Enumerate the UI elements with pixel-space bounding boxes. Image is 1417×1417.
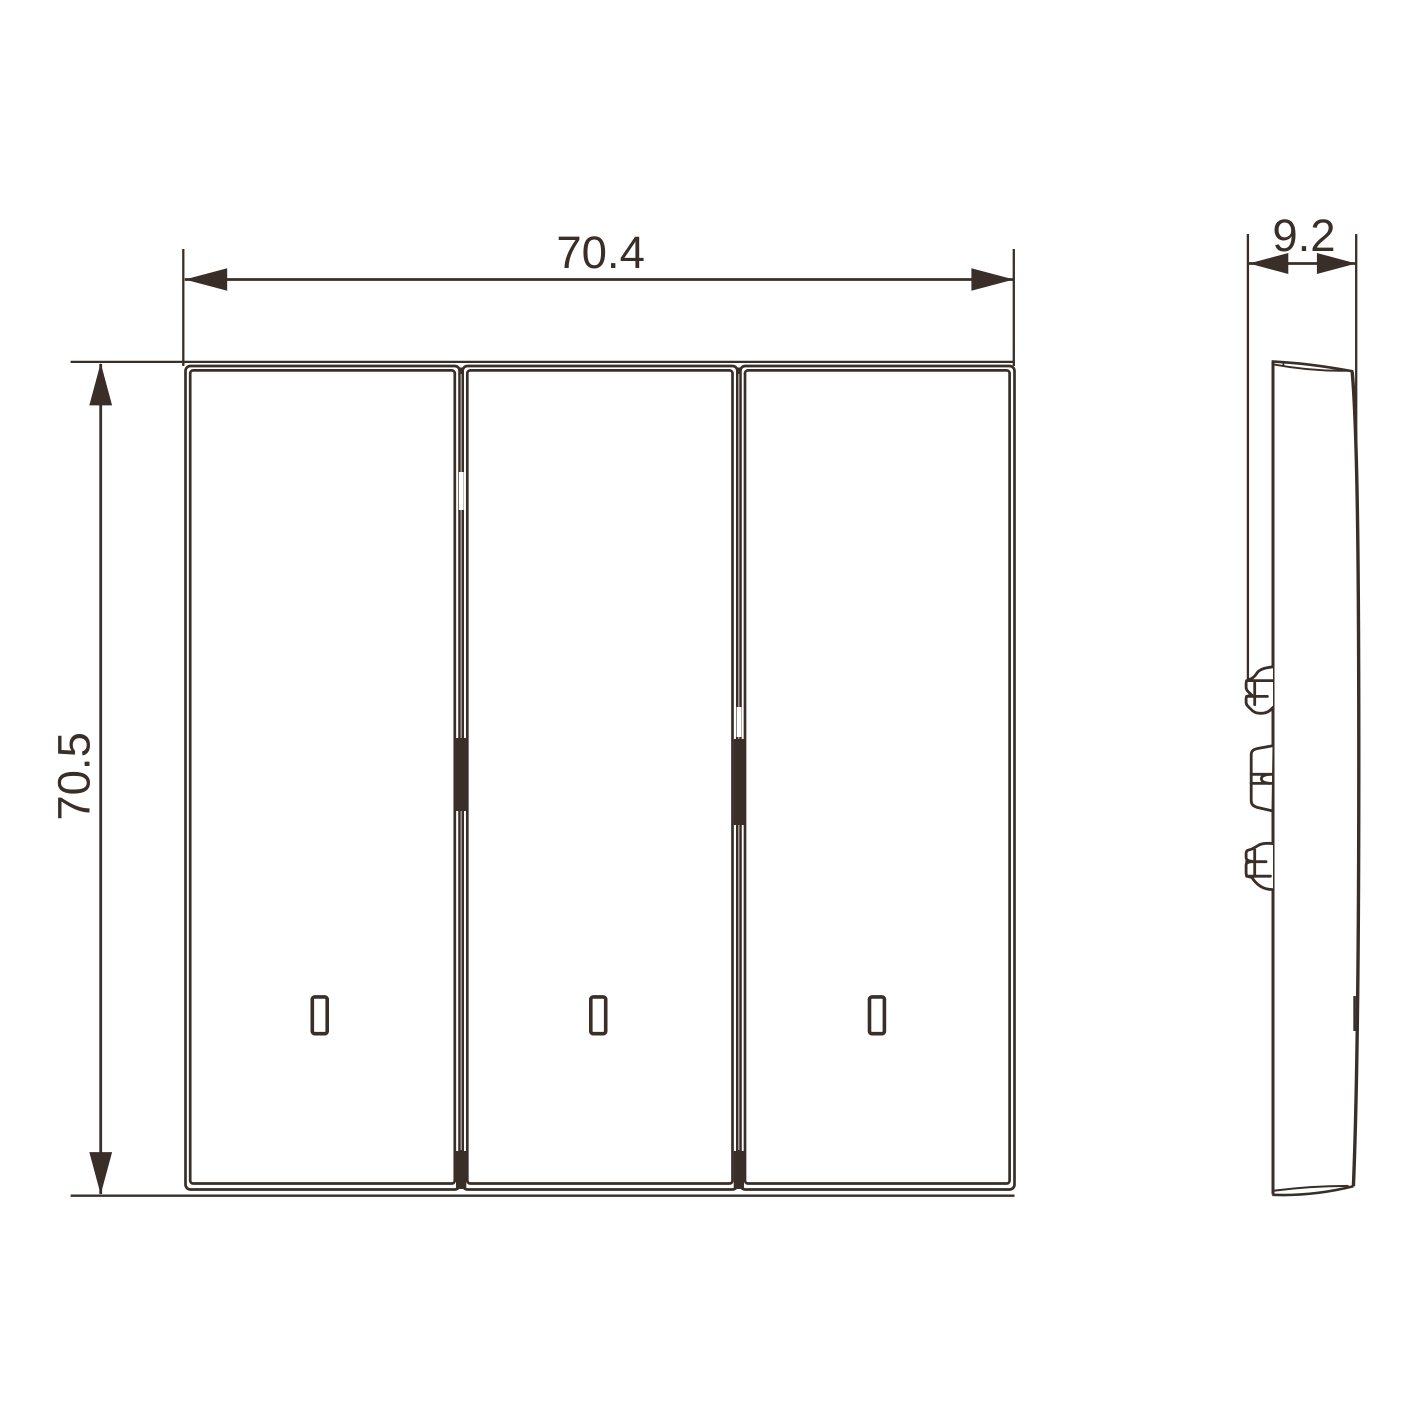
svg-text:9.2: 9.2 (1272, 210, 1335, 261)
svg-text:70.5: 70.5 (48, 732, 99, 821)
svg-text:70.4: 70.4 (556, 227, 645, 278)
